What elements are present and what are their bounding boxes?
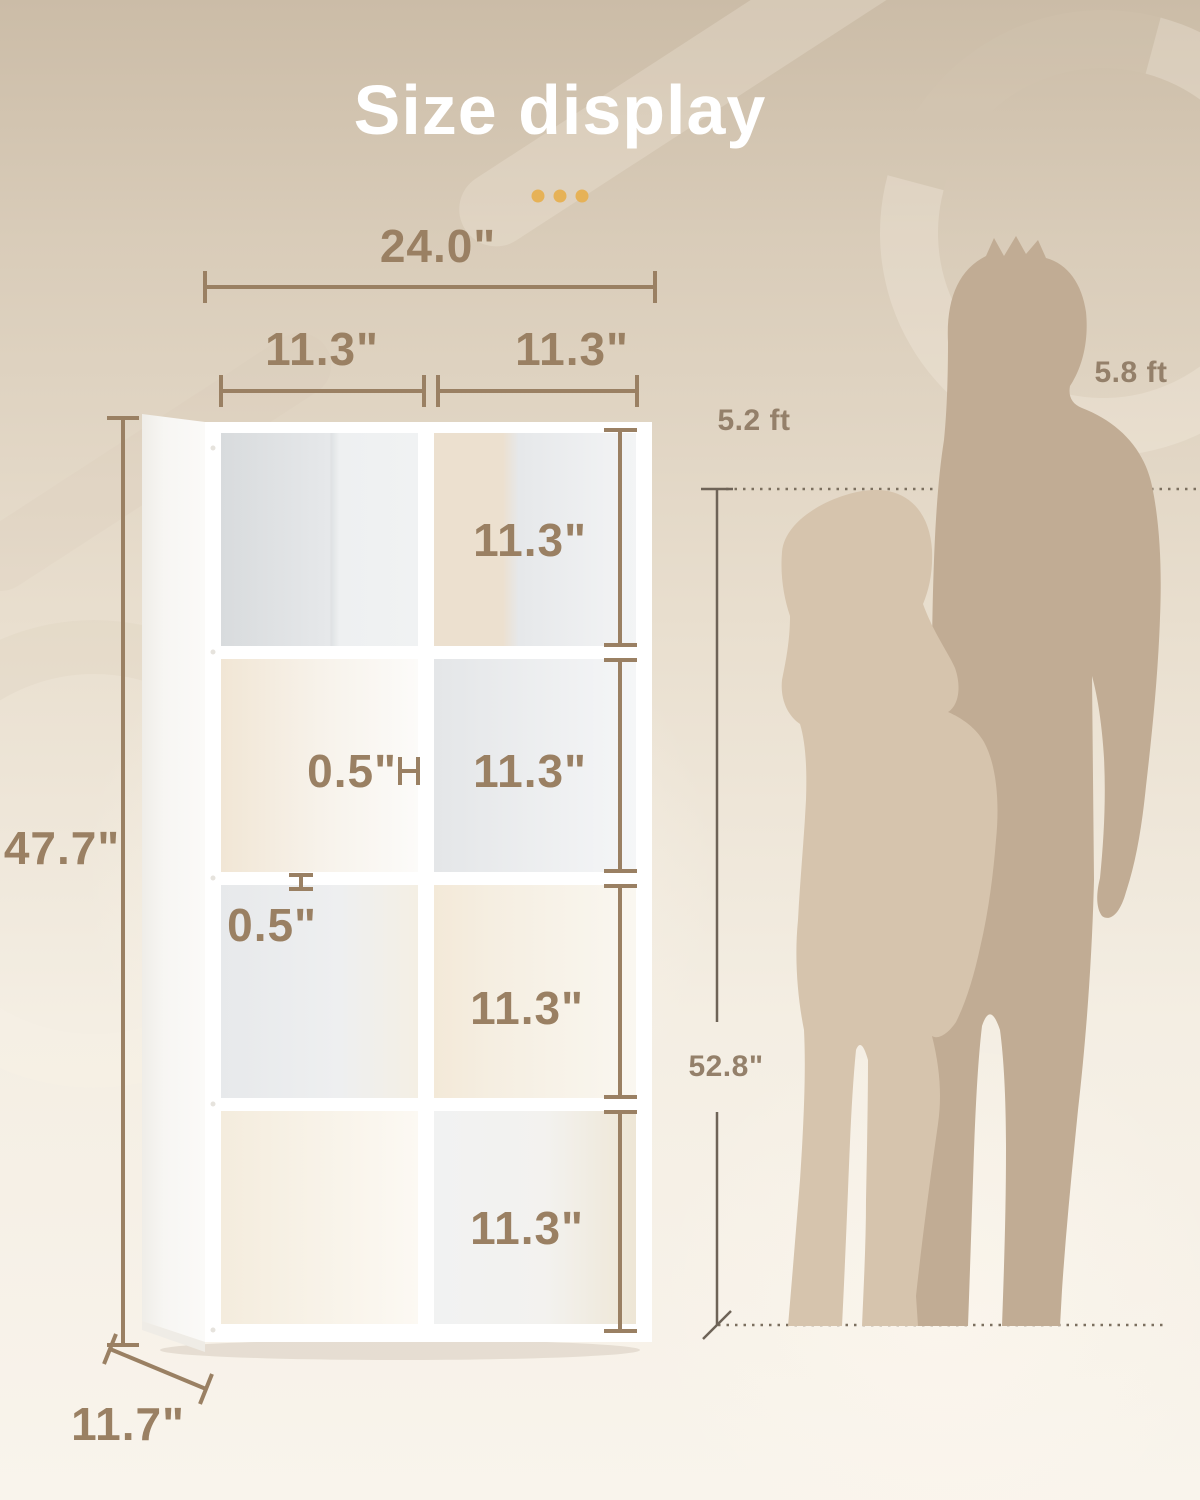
- dim-label-depth: 11.7": [71, 1397, 185, 1451]
- dim-label-shelf-thickness: 0.5": [227, 898, 317, 952]
- dim-label-cube-height-row3: 11.3": [470, 981, 584, 1035]
- bookshelf-shadow: [160, 1340, 640, 1360]
- label-woman-height: 5.2 ft: [717, 404, 790, 438]
- dim-label-cube-height-row2: 11.3": [473, 744, 587, 798]
- bookshelf-side-panel: [142, 414, 205, 1342]
- dim-label-cube-height-row4: 11.3": [470, 1201, 584, 1255]
- dim-label-cube-width-right: 11.3": [515, 322, 629, 376]
- diagram-canvas: [0, 0, 1200, 1500]
- dim-label-divider-thickness: 0.5": [307, 744, 397, 798]
- dim-cube-width-lines: [221, 375, 637, 407]
- dim-label-total-width: 24.0": [380, 219, 496, 273]
- label-reference-height: 52.8": [688, 1050, 763, 1084]
- cube-row1-col1: [221, 433, 418, 646]
- label-man-height: 5.8 ft: [1094, 356, 1167, 390]
- dim-label-cube-height-row1: 11.3": [473, 513, 587, 567]
- dim-total-height-line: [107, 418, 139, 1345]
- cube-row4-col1: [221, 1111, 418, 1324]
- dim-label-cube-width-left: 11.3": [265, 322, 379, 376]
- dim-total-width-line: [205, 271, 655, 303]
- size-display-infographic: Size display: [0, 0, 1200, 1500]
- reference-height-line: [701, 489, 733, 1339]
- dim-label-total-height: 47.7": [4, 821, 120, 875]
